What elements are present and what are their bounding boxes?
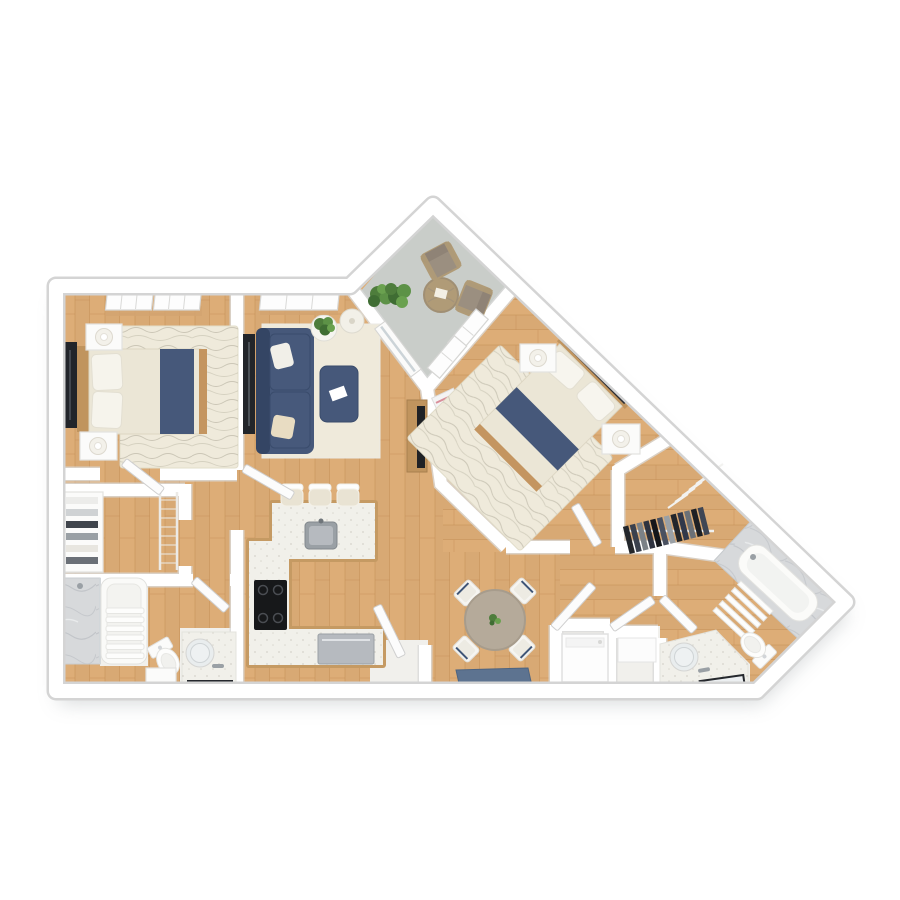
bistro-table <box>424 278 458 312</box>
headboard-1 <box>77 346 89 432</box>
bedroom-1 <box>64 324 238 468</box>
table-lamp <box>96 329 113 346</box>
ottoman-coffee-table <box>320 366 358 422</box>
table-lamp <box>613 431 630 448</box>
marble-shower <box>63 578 100 664</box>
shower-head <box>77 583 83 589</box>
table-lamp <box>530 350 547 367</box>
floor-lamp <box>340 309 364 333</box>
throw-pillow <box>270 414 295 439</box>
sofa <box>256 328 314 454</box>
floor-plan-svg <box>0 0 900 900</box>
cooktop <box>254 580 287 630</box>
bed-runner-1 <box>160 349 194 434</box>
footboard-1 <box>199 349 207 434</box>
floor-plan-canvas <box>0 0 900 900</box>
storage-shelf <box>618 638 656 662</box>
kitchen-sink <box>305 519 337 550</box>
table-lamp <box>90 438 107 455</box>
pillow <box>91 391 123 429</box>
faucet-1 <box>212 664 224 668</box>
pillow <box>91 353 123 391</box>
dishwasher <box>318 634 374 664</box>
